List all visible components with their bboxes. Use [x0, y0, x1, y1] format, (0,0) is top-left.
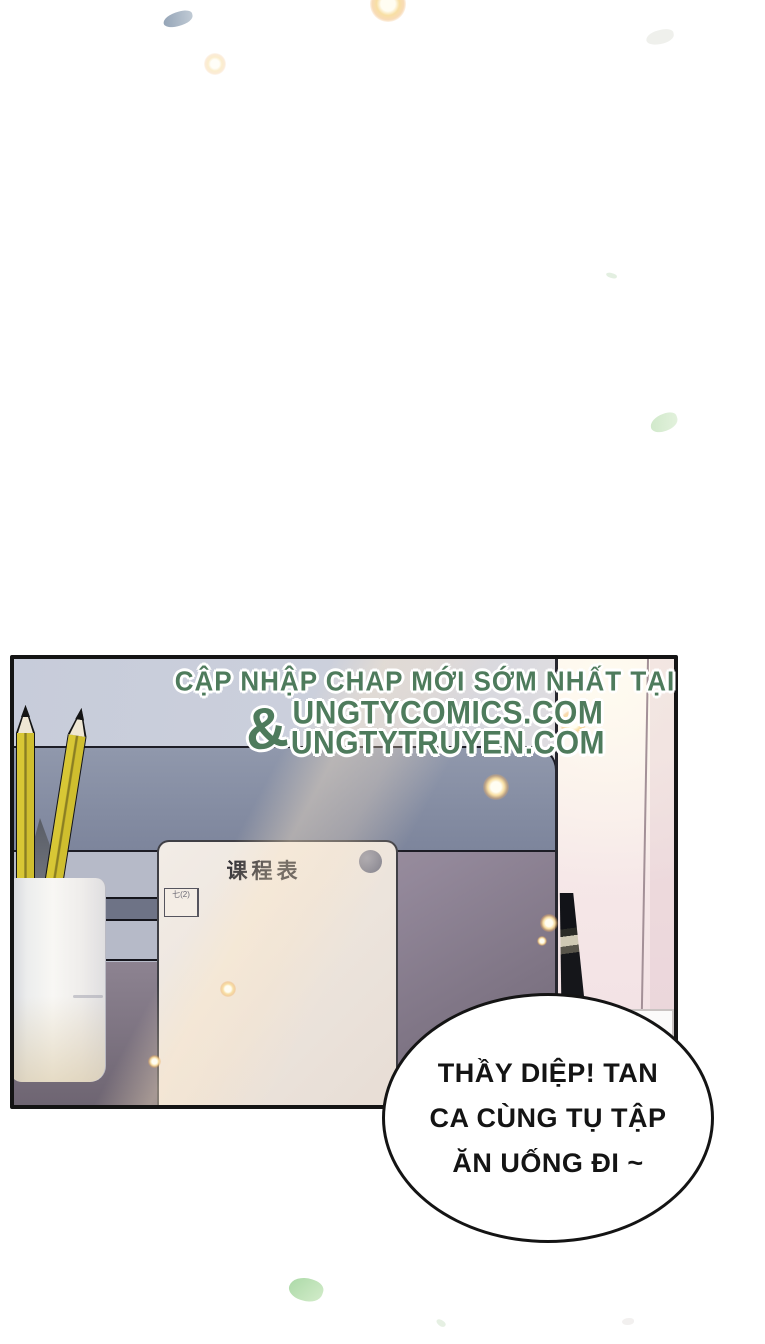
- sparkle-icon: [148, 1055, 161, 1068]
- sparkle-icon: [483, 774, 509, 800]
- pencil-tip: [68, 707, 91, 738]
- sparkle-icon: [537, 936, 547, 946]
- pencil-body: [16, 733, 35, 885]
- sparkle-icon: [540, 914, 558, 932]
- comic-page: { "watermark": { "line1": "CẬP NHẬP CHAP…: [0, 0, 765, 1344]
- leaf-icon: [648, 410, 680, 435]
- ampersand: &: [242, 701, 290, 756]
- desk-shelf-band: [12, 746, 557, 852]
- speech-line-1: THẦY DIỆP! TAN: [438, 1051, 659, 1096]
- speech-line-3: ĂN UỐNG ĐI ~: [452, 1141, 643, 1186]
- leaf-icon: [645, 28, 675, 47]
- sparkle-icon: [220, 981, 236, 997]
- schedule-card: 课程表 时间周一周二周三周四周五早读第一节第二节第三节六(3)六(4)六(3)第…: [157, 840, 398, 1105]
- leaf-icon: [435, 1317, 447, 1328]
- leaf-icon: [286, 1273, 325, 1305]
- leaf-icon: [622, 1318, 634, 1325]
- watermark-tagline: CẬP NHẬP CHAP MỚI SỚM NHẤT TẠI: [115, 665, 735, 698]
- speech-bubble: THẦY DIỆP! TAN CA CÙNG TỤ TẬP ĂN UỐNG ĐI…: [382, 993, 714, 1243]
- schedule-cell: 七(2): [164, 888, 198, 917]
- pen-cup: [10, 878, 106, 1082]
- leaf-icon: [162, 9, 194, 30]
- leaf-icon: [605, 271, 617, 279]
- schedule-title: 课程表: [159, 855, 369, 885]
- sparkle-icon: [204, 53, 226, 75]
- watermark-site-2: UNGTYTRUYEN.COM: [291, 728, 605, 760]
- pencil: [16, 705, 35, 885]
- sparkle-icon: [370, 0, 406, 22]
- speech-line-2: CA CÙNG TỤ TẬP: [430, 1096, 667, 1141]
- desk-edge-line: [102, 959, 164, 961]
- pencil-tip: [16, 705, 35, 733]
- watermark: CẬP NHẬP CHAP MỚI SỚM NHẤT TẠI & UNGTYCO…: [115, 666, 735, 759]
